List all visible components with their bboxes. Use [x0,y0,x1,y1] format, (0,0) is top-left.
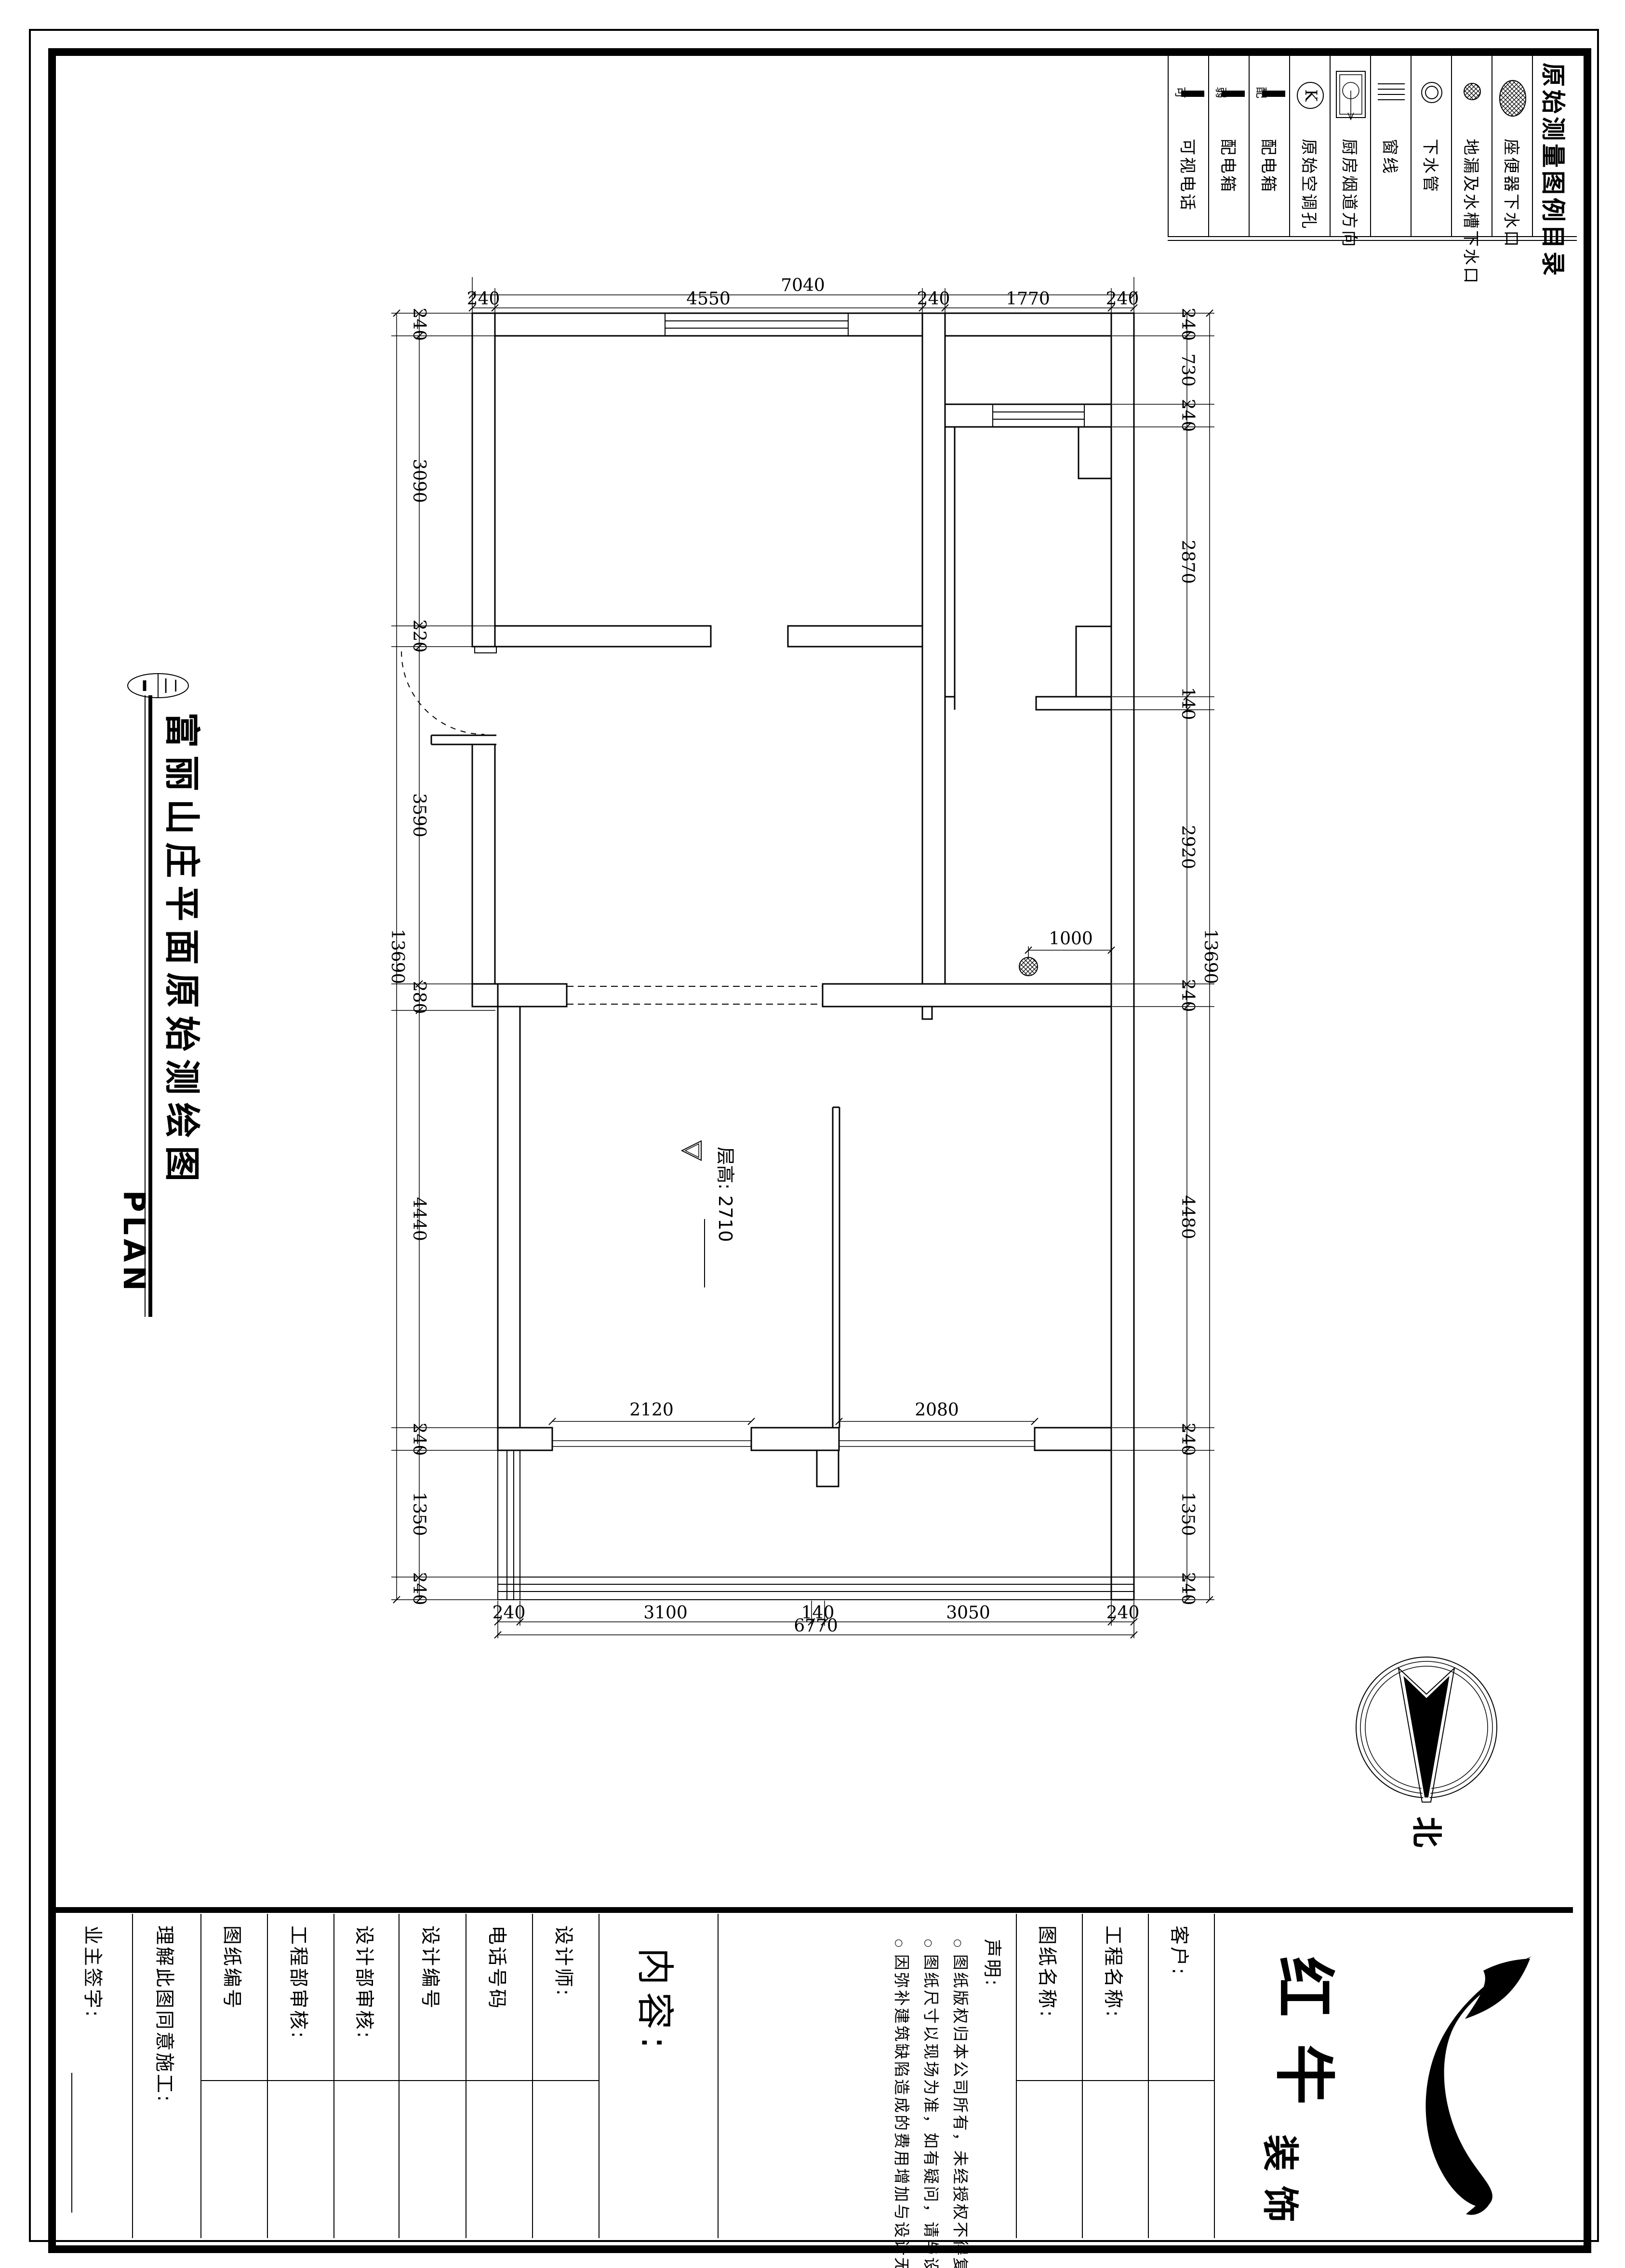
statement-item: 图纸尺寸以现场为准，如有疑问，请与设计师联系，不可度量本图。 [917,1939,946,2209]
sheet-subtitle: PLAN [117,1190,152,1295]
window-symbols [498,313,1134,1600]
statement-item: 图纸版权归本公司所有，未经授权不得复印、转抄。 [946,1939,975,2209]
plan-walls [472,313,1134,1600]
legend-item-flue: 厨房烟道方向 [1330,56,1371,236]
field-designer: 设计师: [532,1914,599,2238]
statement-item: 因弥补建筑缺陷造成的费用增加与设计无关。 [887,1939,917,2209]
dim-text: 240 [1178,1572,1198,1605]
title-block-top-rule [52,1907,1573,1913]
sheet-index-bubble: 二 [120,667,198,706]
field-label: 内容: [631,1914,685,2056]
legend-table: 可 可视电话 弱 配电箱 配 配电箱 K 原始空调孔 [1168,56,1577,237]
dim-text: 13690 [387,929,407,984]
field-label: 电话号码 [485,1914,513,2010]
legend-item-floor-drain: 地漏及水槽下水口 [1451,56,1492,236]
dim-text: 7040 [781,276,825,295]
dim-text: 240 [409,1423,429,1456]
field-label: 理解此图同意施工: [152,1914,180,2103]
legend-label: 座便器下水口 [1501,139,1525,249]
dim-text: 730 [1178,354,1198,387]
dim-text: 4550 [686,289,731,309]
cell-divider [1082,2080,1148,2081]
dim-text: 3590 [409,793,429,837]
field-content: 内容: [599,1914,719,2238]
dim-text: 240 [409,308,429,341]
dim-text: 240 [1178,399,1198,432]
signature-line [71,2073,72,2213]
legend-label: 可视电话 [1177,139,1201,212]
field-statement: 声明: 图纸版权归本公司所有，未经授权不得复印、转抄。 图纸尺寸以现场为准，如有… [718,1914,1017,2238]
legend-item-weak-box: 弱 配电箱 [1208,56,1250,236]
field-agree-construct: 理解此图同意施工: [132,1914,201,2238]
logo-text-main: 红牛 [1265,1956,1353,2132]
legend-label: 配电箱 [1258,139,1282,194]
legend-item-window-line: 窗线 [1370,56,1412,236]
dim-text: 4440 [409,1197,429,1241]
dim-text: 240 [1178,308,1198,341]
legend-label: 下水管 [1420,139,1444,194]
drain-symbol [1019,957,1038,976]
field-design-review: 设计部审核: [333,1914,400,2238]
north-arrow: 北 [1345,1648,1508,1855]
ac-hole-icon: K [1290,61,1331,133]
legend-title: 原始测量图例目录 [1538,56,1572,279]
dim-text: 1770 [1006,289,1050,309]
toilet-drain-icon [1492,61,1533,133]
dim-text: 1350 [409,1492,429,1536]
dim-text: 6770 [794,1616,838,1636]
window-line-icon [1371,61,1412,133]
legend-label: 窗线 [1380,139,1403,175]
dim-text: 240 [493,1603,526,1623]
legend-label: 原始空调孔 [1299,139,1322,230]
bull-logo-icon [1345,1944,1542,2224]
weak-current-box-icon: 弱 [1209,61,1250,133]
field-owner-signature: 业主签字: [57,1914,133,2238]
dim-text: 140 [1178,687,1198,720]
dim-text: 220 [409,620,429,653]
dim-text: 2080 [915,1400,959,1420]
cell-divider [200,2080,267,2081]
legend-label: 厨房烟道方向 [1339,139,1363,249]
dim-text: 3050 [946,1603,990,1623]
field-phone: 电话号码 [466,1914,533,2238]
legend-label: 配电箱 [1218,139,1241,194]
field-label: 工程部审核: [286,1914,314,2040]
dim-text: 240 [409,1572,429,1605]
down-pipe-icon [1412,61,1452,133]
field-label: 客户: [1167,1914,1195,1976]
floor-height-annotation: 层高: 2710 [682,1141,736,1287]
field-label: 设计部审核: [352,1914,380,2040]
dim-text: 240 [1178,979,1198,1012]
cell-divider [532,2080,599,2081]
floor-plan: 1000 2120 2080 层高: 2710 7040 240 45 [376,270,1253,1658]
cell-divider [1148,2080,1214,2081]
north-label: 北 [1408,1817,1444,1847]
video-phone-icon: 可 [1169,61,1209,133]
field-project-name: 工程名称: [1082,1914,1149,2238]
field-drawing-no: 图纸编号 [200,1914,268,2238]
floor-height-text: 层高: 2710 [715,1147,736,1242]
legend-item-down-pipe: 下水管 [1411,56,1452,236]
dim-openings [549,1418,1038,1425]
legend-item-toilet-drain: 座便器下水口 [1492,56,1533,236]
legend-item-power-box: 配 配电箱 [1249,56,1290,236]
dim-text: 13690 [1200,929,1220,984]
legend-item-video-phone: 可 可视电话 [1168,56,1209,236]
drawing-sheet: 可 可视电话 弱 配电箱 配 配电箱 K 原始空调孔 [0,0,1625,2268]
cell-divider [333,2080,399,2081]
entrance-door [401,647,496,744]
legend-title-cell: 原始测量图例目录 [1532,56,1577,236]
power-box-icon: 配 [1250,61,1290,133]
field-label: 业主签字: [80,1914,108,2018]
dim-text: 240 [1106,1603,1140,1623]
statement-title: 声明: [975,1939,1009,2238]
dim-text: 240 [467,289,500,309]
floor-drain-icon [1452,61,1492,133]
field-label: 设计编号 [418,1914,446,2010]
cell-divider [399,2080,466,2081]
field-label: 图纸名称: [1035,1914,1063,2018]
sheet-index-number: 二 [160,677,180,694]
logo-text-sub: 装饰 [1257,2135,1310,2237]
field-label: 工程名称: [1101,1914,1129,2018]
dim-text: 3090 [409,459,429,503]
field-label: 图纸编号 [220,1914,248,2010]
legend-item-ac-hole: K 原始空调孔 [1289,56,1331,236]
field-client: 客户: [1148,1914,1215,2238]
cell-divider [466,2080,532,2081]
dim-text: 240 [1178,1423,1198,1456]
dim-text: 2920 [1178,825,1198,869]
cell-divider [267,2080,333,2081]
dim-text: 240 [1106,289,1139,309]
dim-text: 1350 [1178,1492,1198,1536]
cell-divider [1016,2080,1082,2081]
field-label: 设计师: [551,1914,579,1997]
field-eng-review: 工程部审核: [267,1914,334,2238]
dim-text: 2870 [1178,540,1198,584]
dim-text: 3100 [643,1603,688,1623]
legend-label: 地漏及水槽下水口 [1461,139,1484,285]
dim-text: 280 [409,981,429,1014]
dim-text: 1000 [1049,929,1093,949]
svg-text:K: K [1301,89,1320,102]
field-drawing-name: 图纸名称: [1016,1914,1083,2238]
plan-partitions [552,427,1035,1450]
field-design-no: 设计编号 [399,1914,466,2238]
kitchen-flue-icon [1331,61,1371,133]
dim-text: 2120 [629,1400,674,1420]
sheet-title: 富丽山庄平面原始测绘图 [159,712,211,1189]
dim-text: 240 [917,289,950,309]
dim-text: 4480 [1178,1195,1198,1239]
dashed-beam [567,986,823,1004]
